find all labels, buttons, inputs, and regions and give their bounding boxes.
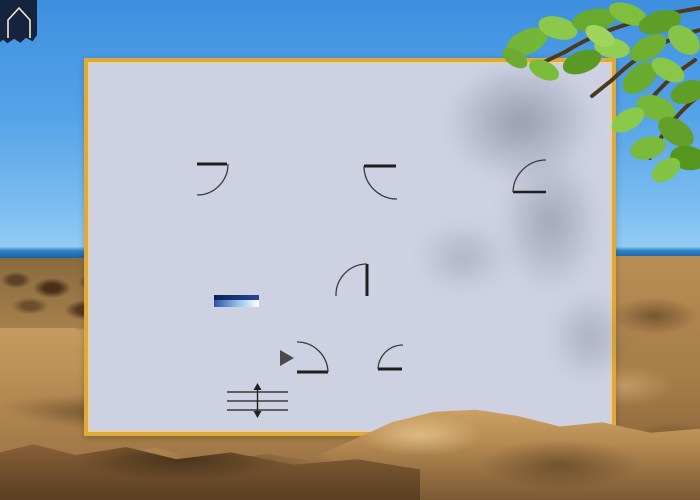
- house-icon[interactable]: [0, 0, 37, 45]
- leaf-shadow: [418, 222, 508, 292]
- tv-lowboard: [214, 295, 259, 307]
- leaf-shadow: [500, 152, 600, 292]
- leaf-shadow: [550, 292, 630, 382]
- floorplan-panel[interactable]: [84, 58, 616, 436]
- beach-floorplan-scene: [0, 0, 700, 500]
